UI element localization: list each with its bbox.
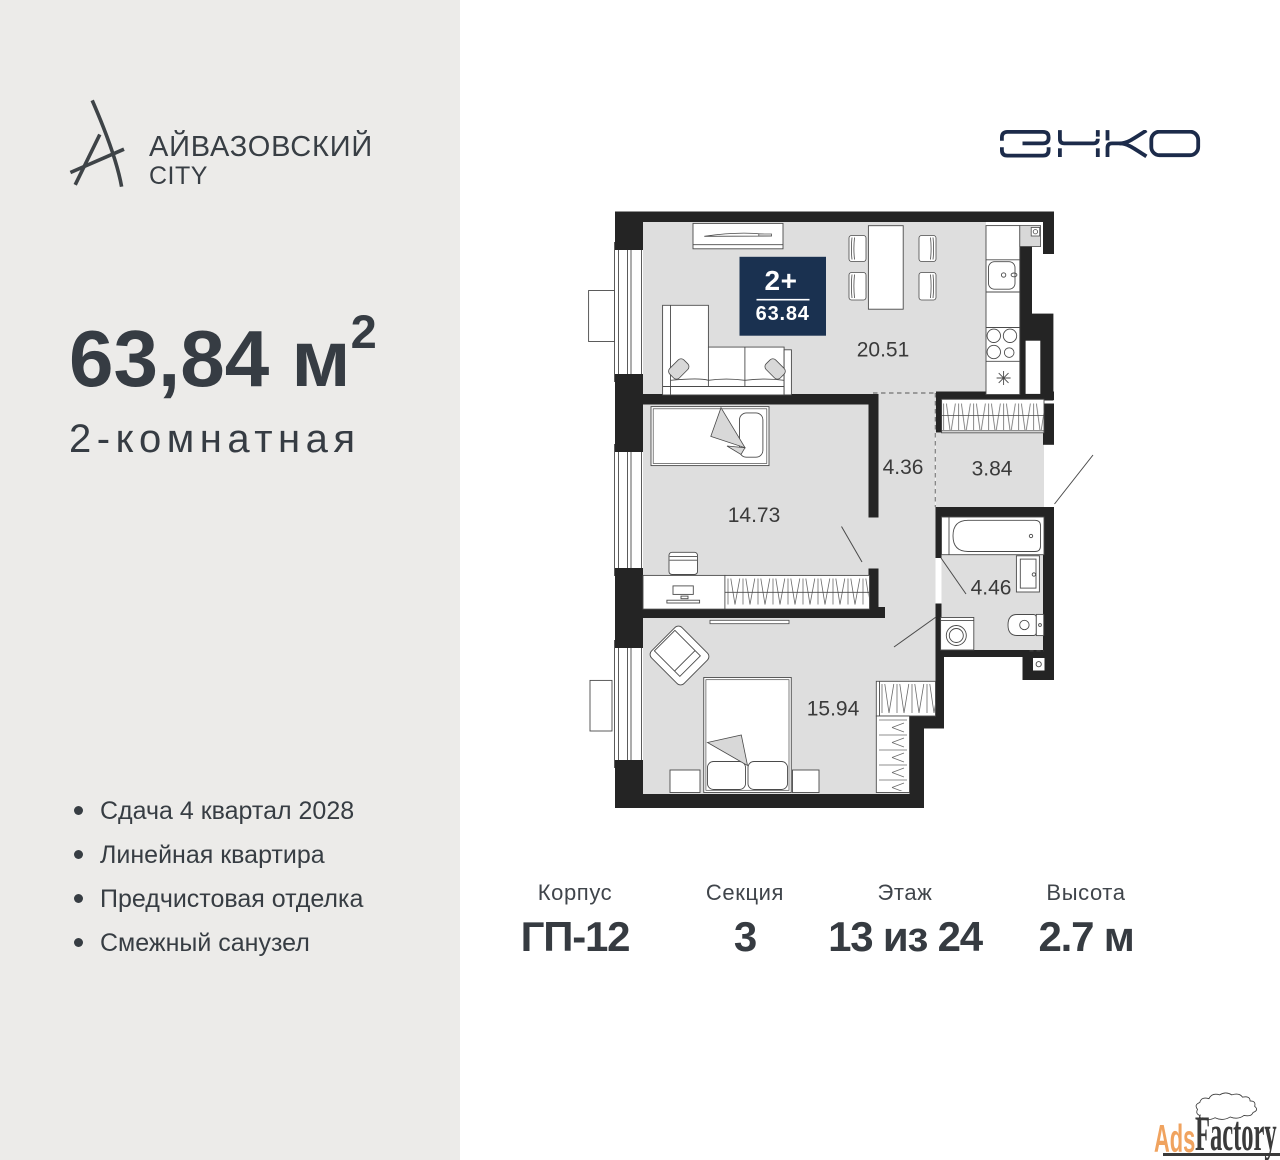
svg-text:15.94: 15.94 — [807, 698, 860, 721]
svg-text:20.51: 20.51 — [857, 339, 910, 362]
svg-text:2+: 2+ — [765, 265, 798, 296]
svg-text:14.73: 14.73 — [728, 504, 781, 527]
svg-text:4.36: 4.36 — [883, 456, 924, 479]
svg-text:3.84: 3.84 — [972, 458, 1013, 481]
svg-text:4.46: 4.46 — [971, 577, 1012, 600]
svg-text:63.84: 63.84 — [756, 303, 810, 325]
